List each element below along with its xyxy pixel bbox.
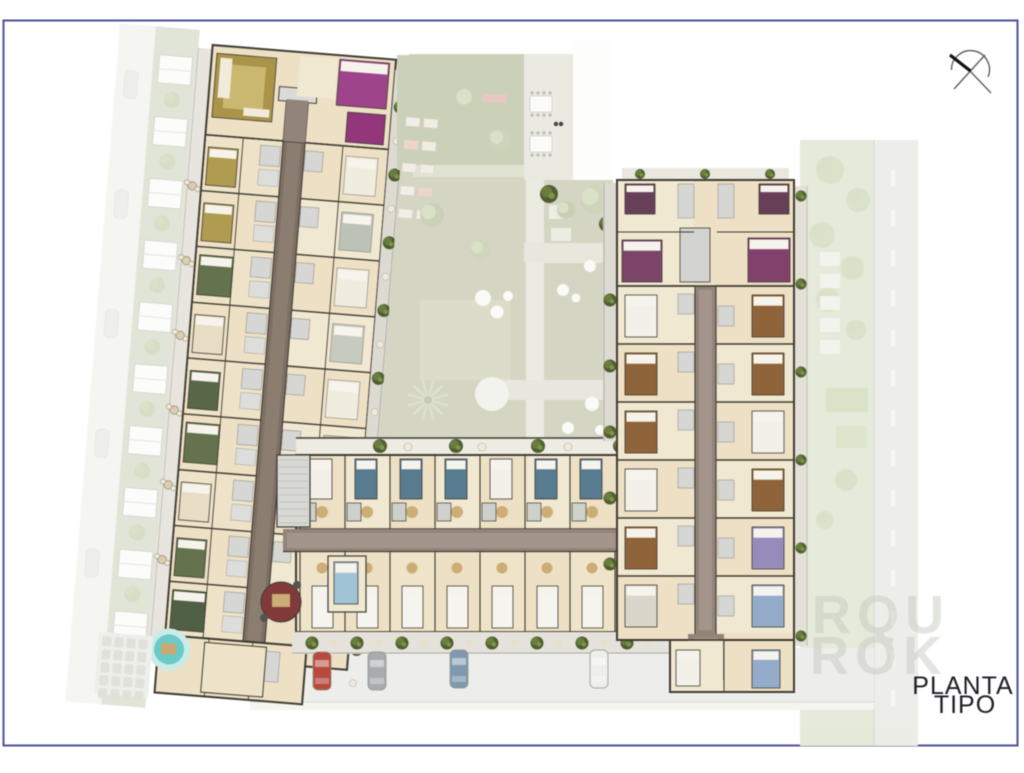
svg-text:TIPO: TIPO <box>934 691 996 719</box>
